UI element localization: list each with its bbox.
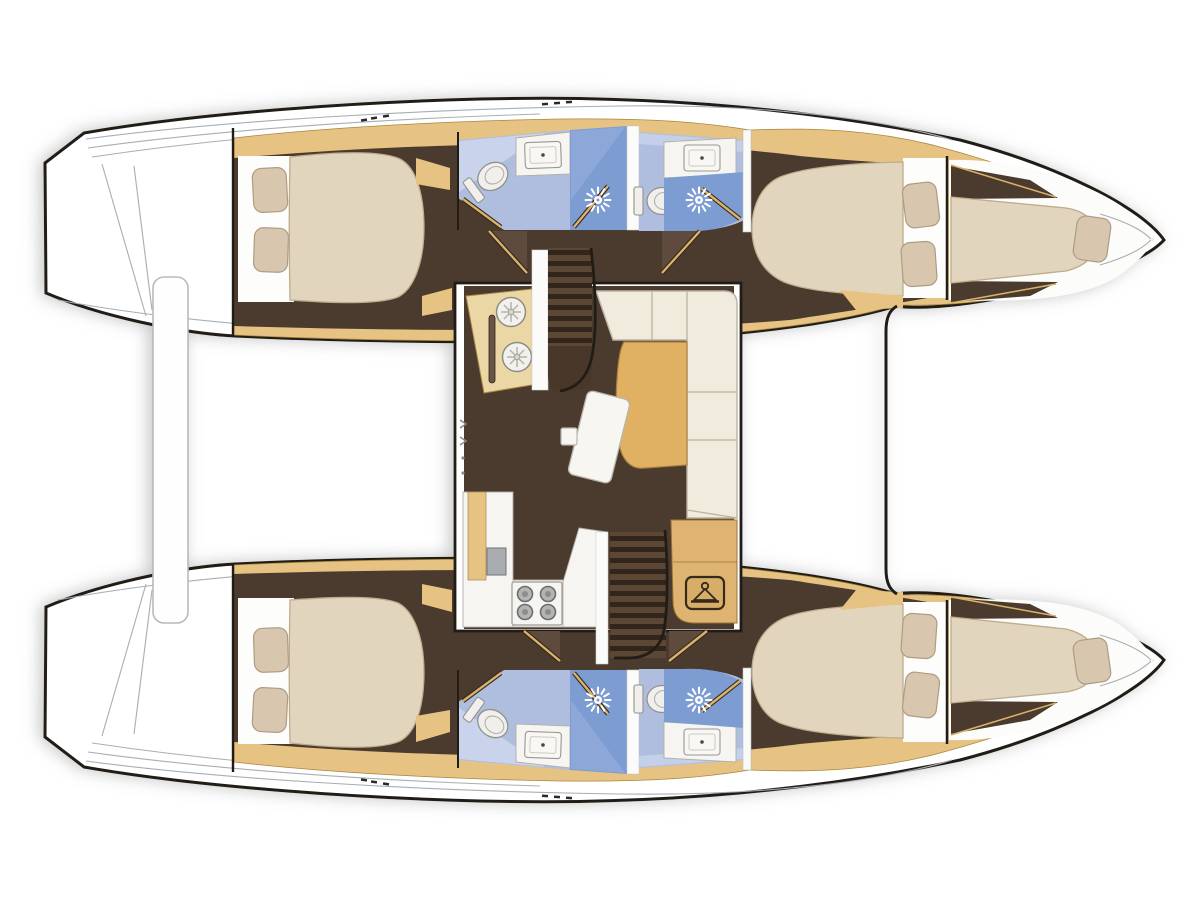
stair-wall xyxy=(596,532,608,664)
catamaran-floor-plan xyxy=(0,0,1200,900)
stair-treads xyxy=(548,250,592,343)
stool xyxy=(561,428,577,445)
stair-wall xyxy=(532,250,548,390)
fitting-dot xyxy=(461,456,464,459)
fridge xyxy=(487,548,506,575)
stairs-to-upper-hull xyxy=(532,248,595,391)
wardrobe-locker xyxy=(686,577,724,609)
bridgedeck-front-line xyxy=(886,306,897,594)
stove xyxy=(512,582,562,625)
floor-plan-canvas xyxy=(0,0,1200,900)
aft-crossbeam-plank xyxy=(153,277,188,623)
galley-rail xyxy=(489,315,495,383)
counter-wood-edge xyxy=(468,492,486,580)
boat xyxy=(45,98,1164,802)
stair-well xyxy=(548,346,592,390)
stairs-to-lower-hull xyxy=(596,530,667,664)
fitting-dot xyxy=(461,471,464,474)
